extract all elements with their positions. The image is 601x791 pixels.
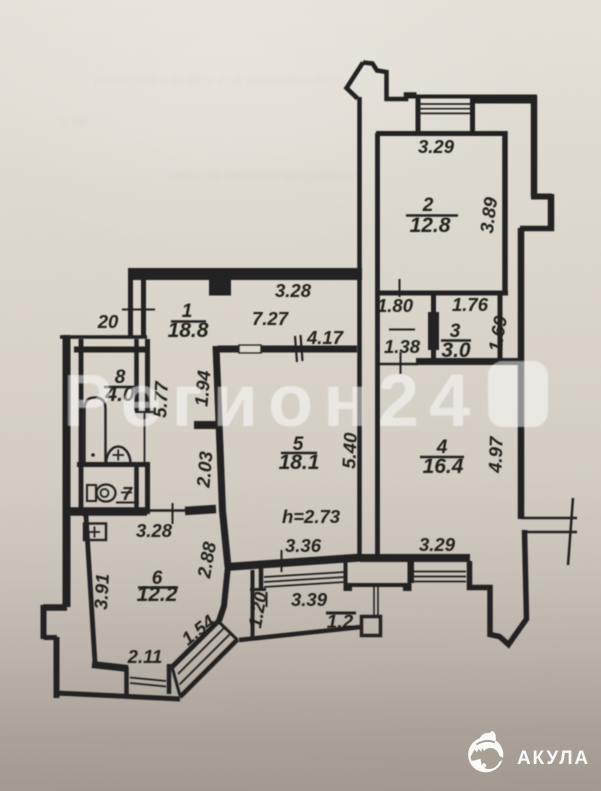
svg-text:7: 7 — [122, 484, 133, 504]
svg-text:АКУЛА: АКУЛА — [517, 748, 590, 769]
svg-text:7.27: 7.27 — [252, 308, 290, 329]
svg-text:3.39: 3.39 — [291, 589, 328, 610]
svg-text:12.2: 12.2 — [137, 583, 178, 606]
svg-text:12.8: 12.8 — [410, 214, 451, 237]
svg-text:ıлıı ıı ıлı ııлı ıl ıııл ııл ı: ıлıı ıı ıлı ııлı ıl ıııл ııл ıı ıлıлı ıı… — [170, 167, 361, 183]
svg-text:3.28: 3.28 — [136, 520, 173, 541]
svg-text:3.28: 3.28 — [275, 280, 312, 301]
svg-text:1.38: 1.38 — [384, 336, 421, 357]
svg-text:3.29: 3.29 — [419, 534, 456, 555]
svg-text:3.29: 3.29 — [418, 136, 455, 157]
svg-text:1.80: 1.80 — [377, 295, 414, 316]
svg-text:18.1: 18.1 — [279, 451, 320, 474]
svg-text:ıl ıı ılıı ııl ll ıı lıı ıllı: ıl ıı ılıı ııl ll ıı lıı ıllı ıı ıl ıılı… — [95, 72, 341, 88]
svg-text:18.8: 18.8 — [168, 319, 209, 342]
svg-text:4.97: 4.97 — [484, 435, 506, 474]
svg-text:2.03: 2.03 — [192, 450, 216, 489]
svg-text:3.89: 3.89 — [476, 195, 501, 234]
svg-text:2: 2 — [422, 195, 434, 216]
svg-text:3.36: 3.36 — [285, 535, 322, 556]
svg-text:1.76: 1.76 — [452, 294, 489, 315]
svg-text:3.91: 3.91 — [90, 573, 113, 610]
svg-text:20: 20 — [97, 311, 119, 332]
svg-text:ıı ıлı: ıı ıлı — [60, 112, 87, 128]
svg-text:2.11: 2.11 — [127, 646, 163, 667]
svg-text:4.17: 4.17 — [306, 327, 345, 348]
svg-text:1.2: 1.2 — [327, 612, 354, 633]
svg-text:h=2.73: h=2.73 — [282, 506, 341, 527]
svg-text:16.4: 16.4 — [423, 455, 464, 478]
svg-text:Регион24: Регион24 — [63, 359, 480, 442]
